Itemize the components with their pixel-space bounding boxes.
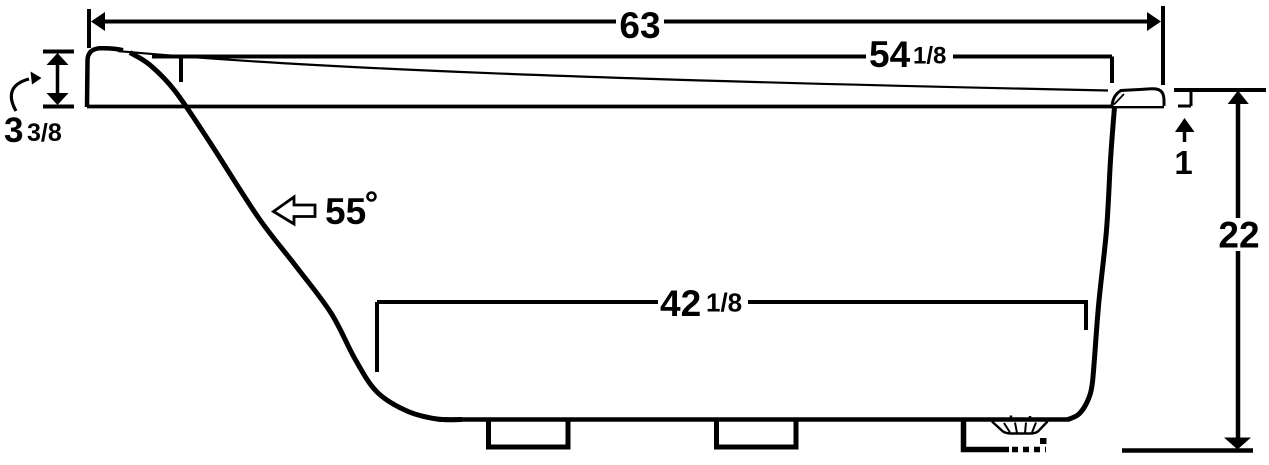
svg-text:22: 22 — [1218, 215, 1259, 256]
svg-text:42: 42 — [660, 283, 701, 324]
svg-text:1/8: 1/8 — [913, 43, 946, 70]
svg-text:55: 55 — [325, 191, 366, 232]
svg-text:3: 3 — [4, 111, 23, 150]
svg-text:1: 1 — [1174, 144, 1192, 181]
svg-text:54: 54 — [869, 34, 911, 75]
svg-text:63: 63 — [619, 5, 660, 46]
svg-text:1/8: 1/8 — [706, 288, 742, 318]
svg-text:3/8: 3/8 — [27, 119, 62, 147]
